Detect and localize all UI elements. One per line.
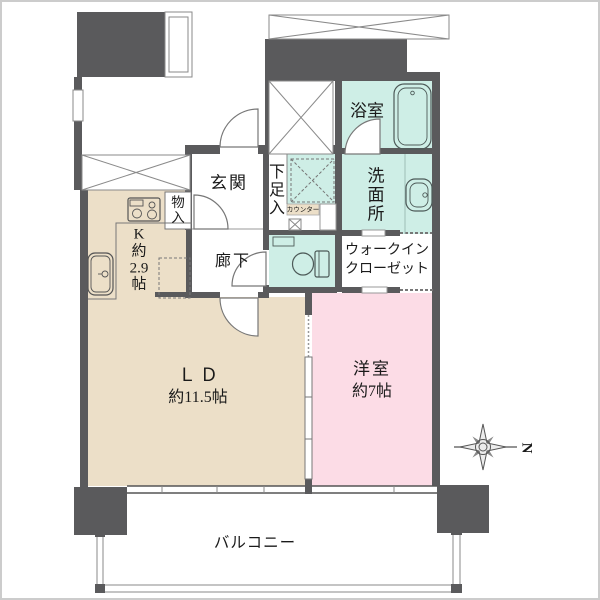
meter-box-icon [165,12,192,77]
toilet-door [232,252,266,286]
wic-opening-top [362,230,385,236]
wic-opening-bottom [362,287,387,293]
void-kitchen-icon [82,155,190,190]
front-door [220,109,258,147]
room-washroom [342,154,432,234]
room-western [312,293,432,486]
pillar-left [74,487,127,535]
counter-tag [287,204,319,215]
pillar-right [437,485,489,533]
window-left [73,90,83,121]
compass-icon [454,424,517,470]
room-toilet [269,235,335,287]
washroom-door [320,204,336,230]
floorplan-graphics [2,2,600,600]
balcony-railing [95,528,462,593]
sliding-door [305,315,312,479]
window-western [312,486,437,494]
small-pipe-space-icon [289,219,301,230]
void-top-icon [269,15,449,39]
wic-shelf-lines [400,233,435,290]
entrance-hall-door [194,195,228,229]
floor-plan: 浴室 洗 面 所 下 足 入 玄関 物 入 カウンター 廊下 ウォークイン クロ… [0,0,600,600]
window-ld [127,486,305,494]
pipe-space-icon [269,81,333,154]
